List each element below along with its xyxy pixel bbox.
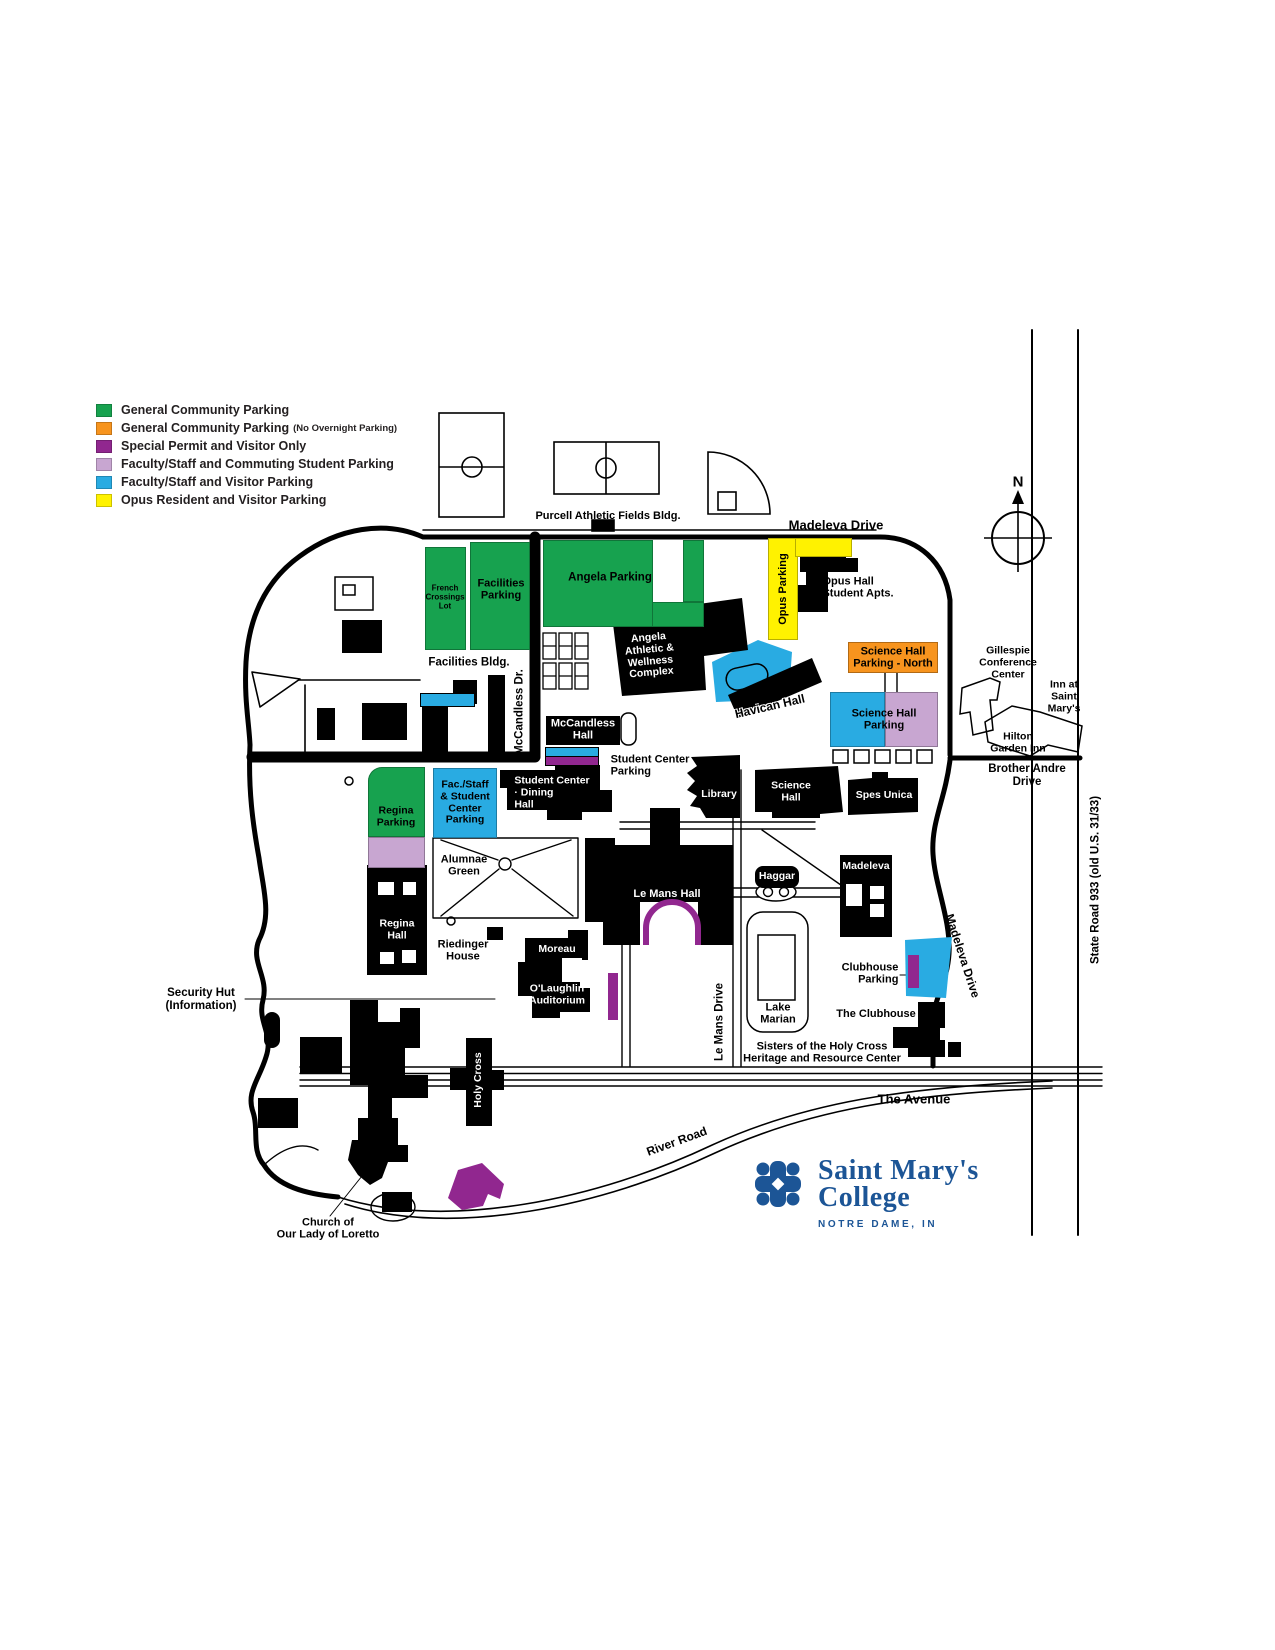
opus-parking-label: Opus Parking [777,553,789,625]
opus-parking-lot-2 [795,538,852,557]
church-complex [350,1000,428,1118]
holy-cross-label: Holy Cross [473,1052,485,1107]
the-avenue-label: The Avenue [878,1093,951,1108]
le-mans-hall-label: Le Mans Hall [633,888,700,900]
angela-parking-lot-3 [683,540,704,602]
facilities-parking-label: Facilities Parking [477,578,524,603]
legend-swatch-green [96,404,112,417]
olaughlin-label: O'Laughlin Auditorium [529,983,585,1007]
madeleva-drive-top-label: Madeleva Drive [789,519,884,534]
map-graphics [0,0,1275,1650]
legend-label: Faculty/Staff and Visitor Parking [121,475,313,489]
logo-text: Saint Mary's College NOTRE DAME, IN [818,1158,979,1230]
legend-row: General Community Parking [96,401,398,419]
alumnae-green-label: Alumnae Green [441,854,487,879]
angela-parking-lot-2 [652,602,704,627]
logo-name-line1: Saint Mary's [818,1158,979,1185]
legend-label: Special Permit and Visitor Only [121,439,306,453]
riedinger-bldg [487,927,503,940]
the-clubhouse-label: The Clubhouse [836,1008,915,1020]
le-mans-drive-label: Le Mans Drive [714,983,727,1061]
saint-marys-college-logo: Saint Mary's College NOTRE DAME, IN [752,1158,979,1230]
campus-map-page: General Community Parking General Commun… [0,0,1275,1650]
mccandless-dr-label: McCandless Dr. [514,669,527,755]
legend-row: General Community Parking(No Overnight P… [96,419,398,437]
church-label: Church of Our Lady of Loretto [277,1217,380,1242]
tennis-courts [543,633,588,689]
library-bldg [687,755,740,818]
legend-row: Special Permit and Visitor Only [96,437,398,455]
student-center-lot-purple [545,756,599,766]
inn-label: Inn at Saint Mary's [1048,679,1081,714]
lake-marian-label: Lake Marian [760,1002,795,1027]
legend-label: Opus Resident and Visitor Parking [121,493,326,507]
facilities-bldg-label: Facilities Bldg. [428,657,509,670]
regina-parking-lot-lavender [368,837,425,868]
student-center-parking-label: Student Center Parking [611,754,690,779]
legend-label: General Community Parking [121,421,289,435]
logo-tagline: NOTRE DAME, IN [818,1219,979,1230]
legend-swatch-purple [96,440,112,453]
opus-hall-label: Opus Hall Student Apts. [822,576,893,601]
state-road-label: State Road 933 (old U.S. 31/33) [1090,796,1103,964]
legend-swatch-blue [96,476,112,489]
purcell-label: Purcell Athletic Fields Bldg. [535,510,680,522]
sisters-label: Sisters of the Holy Cross Heritage and R… [743,1041,901,1066]
regina-hall-label: Regina Hall [379,918,414,942]
legend-swatch-lavender [96,458,112,471]
spes-unica-label: Spes Unica [856,790,913,802]
parking-legend: General Community Parking General Commun… [96,401,398,509]
angela-parking-label: Angela Parking [568,572,652,585]
legend-label: Faculty/Staff and Commuting Student Park… [121,457,394,471]
le-mans-arch [646,902,698,945]
fac-staff-label: Fac./Staff & Student Center Parking [440,780,490,827]
science-hall-label: Science Hall [771,780,811,804]
mccandless-hall-label: McCandless Hall [551,718,615,743]
security-hut-bldg [264,1012,280,1048]
security-hut-label: Security Hut (Information) [166,987,237,1013]
student-center-dining-label: Student Center · Dining Hall [514,775,589,810]
special-permit-strip [608,973,618,1020]
legend-label: General Community Parking [121,403,289,417]
french-crossings-label: French Crossings Lot [425,585,464,612]
college-cross-icon [752,1158,804,1210]
brother-andre-label: Brother Andre Drive [988,763,1066,789]
church-bldg [348,1118,408,1185]
legend-row: Opus Resident and Visitor Parking [96,491,398,509]
riedinger-label: Riedinger House [438,939,489,964]
legend-row: Faculty/Staff and Commuting Student Park… [96,455,398,473]
haggar-label: Haggar [759,871,795,883]
regina-parking-label: Regina Parking [377,805,416,829]
angela-complex-label: Angela Athletic & Wellness Complex [624,630,677,681]
special-permit-lot-south [448,1163,504,1210]
legend-swatch-yellow [96,494,112,507]
gillespie-outline [960,678,1000,735]
legend-row: Faculty/Staff and Visitor Parking [96,473,398,491]
science-north-label: Science Hall Parking - North [853,646,932,671]
science-parking-label: Science Hall Parking [852,708,917,733]
compass-north-label: N [1013,475,1024,492]
legend-swatch-orange [96,422,112,435]
moreau-label: Moreau [538,944,575,956]
gillespie-label: Gillespie Conference Center [979,645,1037,680]
hilton-label: Hilton Garden Inn [990,731,1045,755]
clubhouse-parking-label: Clubhouse Parking [842,962,899,987]
library-label: Library [701,789,737,801]
compass-rose [984,490,1052,572]
facilities-blue-strip [420,693,475,707]
logo-name-line2: College [818,1185,979,1212]
madeleva-bldg-label: Madeleva [842,861,889,873]
clubhouse-bldg [918,1002,945,1028]
